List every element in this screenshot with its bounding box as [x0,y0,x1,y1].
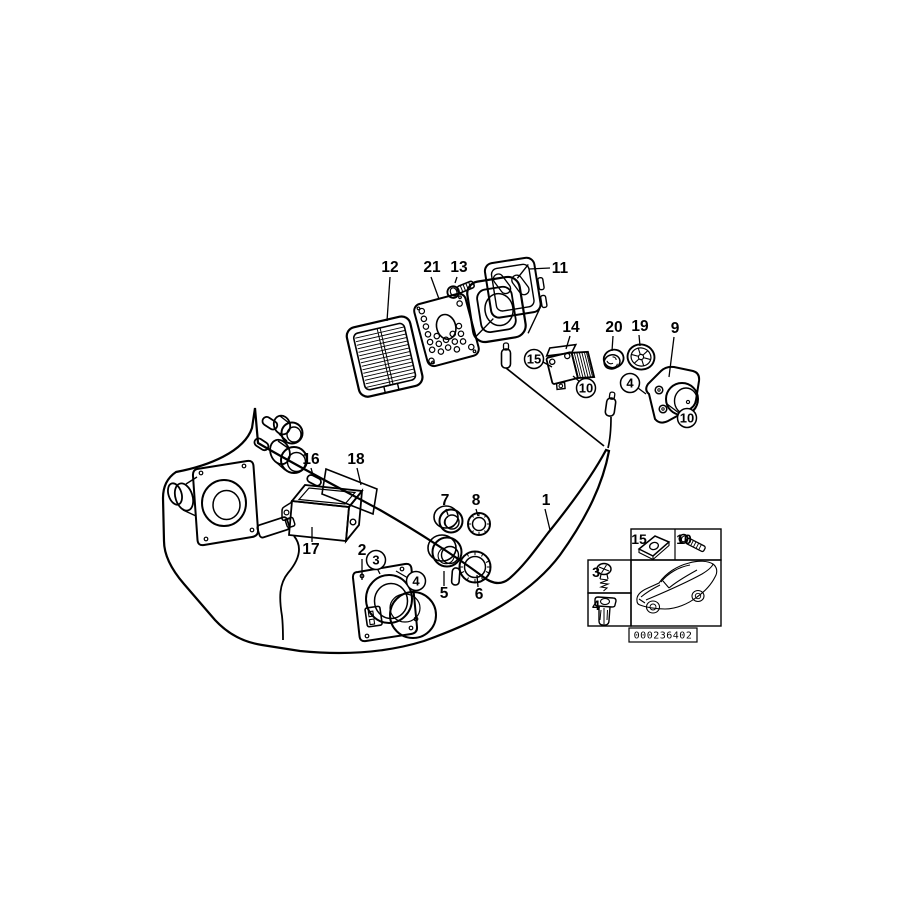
exploded-parts-diagram: 000236402 122113111420199161817278561151… [0,0,900,900]
inset-label-15: 15 [631,531,647,547]
inset-label-3: 3 [592,564,600,580]
small-pin [451,568,460,585]
svg-text:15: 15 [527,352,541,367]
svg-text:10: 10 [680,411,694,426]
svg-text:11: 11 [552,260,569,277]
inset-label-10: 10 [676,531,692,547]
callout-11: 11 [529,260,569,277]
callout-16: 16 [302,451,320,475]
svg-text:21: 21 [423,259,441,276]
image-code: 000236402 [634,631,693,642]
svg-text:6: 6 [475,586,484,603]
svg-text:9: 9 [671,320,680,337]
svg-text:16: 16 [302,451,320,468]
svg-text:13: 13 [450,259,468,276]
callout-21: 21 [423,259,441,299]
tweeter-speakers [253,413,307,473]
callout-20: 20 [605,319,622,351]
left-square-speaker [165,461,258,545]
speaker-grille [345,315,424,399]
inset-label-4: 4 [592,597,600,613]
svg-text:18: 18 [347,451,365,468]
trim-ring-6 [460,552,491,583]
callout-18: 18 [347,451,365,485]
adapter-plate [413,292,481,368]
callout-10-circled-module: 10 [573,376,596,398]
svg-text:4: 4 [412,574,420,589]
svg-text:7: 7 [441,492,450,509]
svg-text:3: 3 [372,553,379,568]
callout-13: 13 [450,259,468,283]
cable-pin-a [502,343,511,368]
callout-2: 2 [358,542,367,580]
callout-5: 5 [440,571,449,602]
svg-text:15: 15 [631,531,647,547]
adapter-cup-7 [434,506,463,533]
svg-text:10: 10 [579,381,593,396]
car-sketch [637,561,717,613]
callout-12: 12 [381,259,398,321]
legend-inset: 000236402 [588,529,721,642]
cable-pin-b [605,392,617,417]
svg-text:3: 3 [592,564,600,580]
svg-text:20: 20 [605,319,622,336]
callout-17: 17 [302,527,319,558]
svg-text:8: 8 [472,492,481,509]
round-grille [625,341,658,372]
shelf-harness-outline [163,408,609,653]
parts-diagram-page: 000236402 122113111420199161817278561151… [0,0,900,900]
callout-1: 1 [542,492,551,530]
svg-text:19: 19 [631,318,649,335]
svg-text:12: 12 [381,259,398,276]
svg-text:17: 17 [302,541,319,558]
callout-4-circled-speaker: 4 [396,571,426,591]
connector-lead [257,515,299,640]
svg-text:14: 14 [562,319,580,336]
cable-branch [506,368,611,448]
svg-text:10: 10 [676,531,692,547]
callout-4-circled-pod: 4 [621,374,647,395]
svg-text:4: 4 [626,376,634,391]
svg-text:5: 5 [440,585,449,602]
svg-text:2: 2 [358,542,367,559]
svg-text:4: 4 [592,597,600,613]
callout-19: 19 [631,318,649,346]
trim-ring-8 [468,513,490,535]
cover-disc [601,347,626,371]
svg-text:1: 1 [542,492,551,509]
